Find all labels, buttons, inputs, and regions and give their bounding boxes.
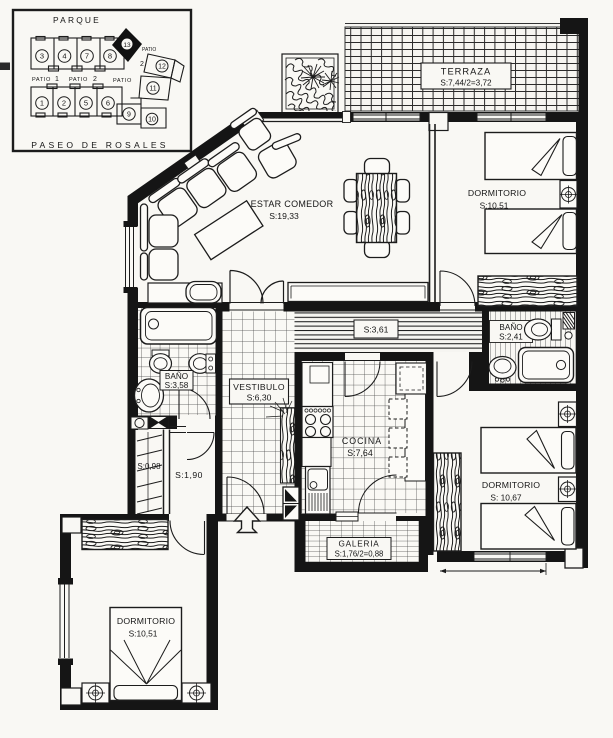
svg-text:5: 5 [84, 99, 88, 108]
svg-text:PATIO: PATIO [113, 78, 132, 84]
svg-text:1: 1 [55, 76, 60, 83]
svg-text:TERRAZA: TERRAZA [441, 67, 491, 77]
svg-text:1: 1 [40, 99, 44, 108]
svg-text:BAÑO: BAÑO [165, 371, 188, 381]
svg-text:PARQUE: PARQUE [53, 15, 101, 25]
svg-text:S:1,90: S:1,90 [175, 470, 203, 480]
svg-text:2: 2 [62, 99, 66, 108]
svg-text:PATIO: PATIO [32, 77, 51, 83]
svg-text:PATIO: PATIO [69, 77, 88, 83]
svg-text:S:19,33: S:19,33 [269, 211, 299, 221]
svg-text:BAÑO: BAÑO [499, 322, 522, 332]
svg-text:PASEO DE ROSALES: PASEO DE ROSALES [31, 140, 169, 150]
svg-text:PATIO: PATIO [142, 47, 156, 53]
svg-text:S:2,41: S:2,41 [499, 333, 523, 342]
svg-text:S:3,58: S:3,58 [165, 381, 189, 390]
svg-text:2: 2 [140, 61, 144, 68]
svg-text:S:6,30: S:6,30 [247, 393, 272, 403]
svg-text:13: 13 [123, 42, 131, 49]
svg-text:S:7,44/2=3,72: S:7,44/2=3,72 [440, 79, 492, 88]
svg-text:DORMITORIO: DORMITORIO [482, 480, 540, 490]
svg-text:9: 9 [127, 112, 131, 119]
svg-text:10: 10 [148, 117, 156, 124]
svg-text:DORMITORIO: DORMITORIO [117, 616, 175, 626]
svg-text:S:1,76/2=0,88: S:1,76/2=0,88 [335, 550, 384, 559]
svg-text:3: 3 [40, 52, 44, 61]
svg-text:VESTIBULO: VESTIBULO [233, 382, 285, 392]
svg-text:7: 7 [85, 52, 89, 61]
svg-text:S: 10,67: S: 10,67 [490, 493, 522, 503]
svg-text:S:7,64: S:7,64 [347, 448, 373, 458]
svg-text:11: 11 [149, 86, 156, 93]
svg-text:GALERIA: GALERIA [338, 540, 379, 549]
svg-text:2: 2 [93, 76, 98, 83]
svg-text:DORMITORIO: DORMITORIO [468, 188, 526, 198]
svg-text:ESTAR COMEDOR: ESTAR COMEDOR [251, 199, 334, 209]
svg-text:12: 12 [158, 64, 166, 71]
svg-text:6: 6 [106, 99, 110, 108]
svg-text:S:3,61: S:3,61 [364, 325, 389, 335]
svg-text:COCINA: COCINA [342, 436, 382, 446]
svg-text:S:0,98: S:0,98 [137, 462, 161, 471]
svg-text:4: 4 [62, 52, 66, 61]
svg-text:8: 8 [108, 52, 112, 61]
svg-text:S:10,51: S:10,51 [129, 629, 158, 639]
